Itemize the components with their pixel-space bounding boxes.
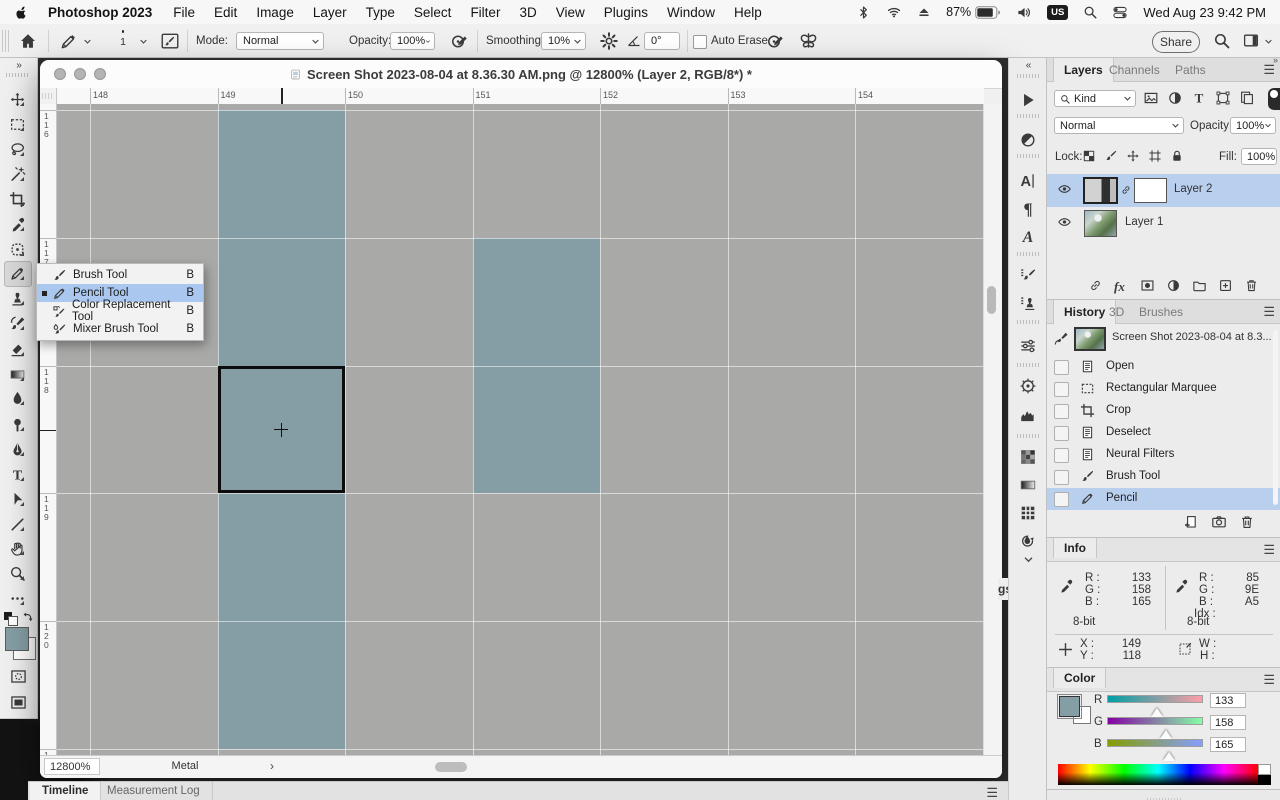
w-label: W : [1199,638,1216,650]
menu-help[interactable]: Help [734,5,762,20]
info-panel: Info ☰ R : G : B : 133 158 165 8-bit R :… [1047,538,1280,668]
shape-layers-filter-icon[interactable] [1215,90,1231,106]
actions-panel-icon[interactable] [1019,91,1037,109]
history-source-well[interactable] [1054,382,1069,397]
horizontal-scrollbar-thumb[interactable] [435,762,467,772]
tool-move[interactable] [5,88,31,112]
x-value: 149 [1111,638,1141,650]
b-slider-handle[interactable] [1163,746,1175,761]
ruler-label: 154 [858,90,873,100]
adjustment-layers-filter-icon[interactable] [1167,90,1183,106]
menu-bar-clock[interactable]: Wed Aug 23 9:42 PM [1143,5,1266,20]
history-source-well[interactable] [1054,492,1069,507]
menu-select[interactable]: Select [414,5,452,20]
glyphs-panel-icon[interactable]: A [1019,228,1037,246]
macos-menu-bar: Photoshop 2023 FileEditImageLayerTypeSel… [0,0,1280,24]
layer-visibility-eye-icon[interactable] [1056,215,1073,229]
character-panel-icon[interactable]: A [1019,172,1037,190]
ruler-label: 1 1 6 [44,112,49,139]
history-item-crop[interactable]: Crop [1047,400,1280,422]
pixel-grid-line [855,104,856,756]
tool-preset-chevron-icon[interactable] [83,37,92,46]
dock-grabber[interactable] [1017,252,1039,256]
pixel-grid-line [600,104,601,756]
tool-clone-stamp[interactable] [5,287,31,311]
flyout-item-color-replacement-tool[interactable]: Color Replacement ToolB [37,302,203,320]
quick-mask-icon[interactable] [9,668,28,685]
lock-position-icon[interactable] [1126,149,1140,163]
menu-window[interactable]: Window [667,5,715,20]
history-snapshot-row[interactable]: Screen Shot 2023-08-04 at 8.3... [1047,326,1280,354]
tool-object-selection[interactable] [5,163,31,187]
pixel-grid-line [473,104,474,756]
color-panel: Color ☰ R 133 G 158 B 165 [1047,668,1280,790]
g-slider-handle[interactable] [1160,724,1172,739]
new-group-icon[interactable] [1192,278,1207,293]
pixel-grid-line [57,749,984,750]
bit-depth: 8-bit [1073,616,1095,628]
smoothing-select[interactable]: 10% [541,32,586,50]
flyout-shortcut: B [186,305,194,317]
mode-label: Mode: [196,35,228,47]
tab-info[interactable]: Info [1053,538,1097,558]
history-item-rectangular-marquee[interactable]: Rectangular Marquee [1047,378,1280,400]
layers-panel: Layers Channels Paths ☰ » Kind T Normal … [1047,58,1280,300]
collapse-toolbar-icon[interactable]: » [0,60,37,71]
tools-panel: » T [0,58,38,719]
pixel-grid-line [57,493,984,494]
r-value: 133 [1127,572,1151,584]
home-icon[interactable] [19,32,37,50]
tab-channels[interactable]: Channels [1099,58,1170,82]
opacity-label: Opacity: [1190,120,1232,132]
brush-crosshair-cursor [281,423,283,437]
ruler-cursor-indicator [40,430,56,432]
eyedropper-icon[interactable] [1173,578,1189,594]
b-slider-label: B [1094,738,1102,750]
ruler-cursor-indicator [281,88,283,104]
app-menu-name[interactable]: Photoshop 2023 [48,5,152,20]
cursor-position-icon [1057,641,1074,658]
document-titlebar[interactable]: Screen Shot 2023-08-04 at 8.36.30 AM.png… [40,60,1002,89]
share-button[interactable]: Share [1152,31,1200,53]
svg-text:A: A [1022,229,1034,246]
tool-edit-toolbar[interactable] [5,587,31,611]
ruler-tick [473,88,474,104]
tool-line[interactable] [5,513,31,537]
tool-eyedropper[interactable] [5,213,31,237]
pixel-grid-line [90,104,91,756]
tab-timeline[interactable]: Timeline [30,782,101,800]
ruler-label: 149 [221,90,236,100]
type-icon: T [9,466,26,483]
y-label: Y : [1080,650,1094,662]
g-label: G : [1085,584,1100,596]
current-tool-icon[interactable] [59,32,78,51]
menu-3d[interactable]: 3D [519,5,536,20]
history-scrollbar[interactable] [1273,330,1278,505]
b-value: 165 [1127,596,1151,608]
adjustments-half-panel-icon[interactable] [1019,131,1037,149]
smoothing-gear-icon[interactable] [599,31,619,51]
input-source-badge[interactable]: US [1047,5,1068,20]
r-hex-value: 85 [1235,572,1259,584]
ruler-origin-corner[interactable] [40,88,57,105]
photoshop-app: { "menu_bar": { "app_name": "Photoshop 2… [0,0,1280,800]
auto-erase-label: Auto Erase [711,35,768,47]
selection-size-icon [1177,641,1193,657]
clone-source-panel-icon[interactable] [1019,294,1037,312]
tab-paths[interactable]: Paths [1165,58,1216,82]
svg-text:¶: ¶ [1023,200,1032,218]
menu-layer[interactable]: Layer [313,5,347,20]
line-icon [9,516,26,533]
history-item-label: Brush Tool [1106,470,1160,482]
new-snapshot-icon[interactable] [1211,514,1227,530]
paragraph-panel-icon[interactable]: ¶ [1019,200,1037,218]
r-label: R : [1085,572,1100,584]
tool-pencil[interactable] [4,261,32,287]
tool-gradient[interactable] [5,363,31,387]
foreground-color-swatch[interactable] [1059,696,1080,717]
dock-grabber[interactable] [1017,320,1039,324]
volume-icon[interactable] [1016,5,1032,20]
chevron-down-icon [1264,121,1272,130]
bluetooth-icon[interactable] [856,5,871,20]
mixer-brush-icon [52,322,67,337]
status-chevron-icon[interactable]: › [270,759,274,773]
default-colors-bg-icon [8,616,18,626]
dock-grabber[interactable] [1017,434,1039,438]
pixel-grid-line [345,104,346,756]
tool-crop[interactable] [5,188,31,212]
opacity-select[interactable]: 100% [390,32,435,50]
workspace-switcher-icon[interactable] [1242,32,1260,49]
close-window-button[interactable] [54,68,66,80]
tool-lasso[interactable] [5,138,31,162]
hand-icon [9,540,26,557]
ruler-tick [600,88,601,104]
layer-name[interactable]: Layer 2 [1174,183,1212,195]
brush-icon [1080,469,1095,484]
snapshot-name: Screen Shot 2023-08-04 at 8.3... [1112,331,1272,343]
layer-opacity-select[interactable]: 100% [1230,117,1276,134]
menu-image[interactable]: Image [256,5,294,20]
blur-icon [9,390,26,407]
crop-sm-icon [1080,403,1095,418]
vertical-ruler: 1 1 61 1 71 1 81 1 91 2 01 2 1 [40,104,57,756]
tool-eraser[interactable] [5,338,31,362]
type-layers-filter-icon[interactable]: T [1191,90,1207,106]
tool-type[interactable]: T [5,463,31,487]
apple-menu-icon[interactable] [14,4,29,21]
link-layers-icon[interactable] [1088,278,1103,293]
menu-plugins[interactable]: Plugins [604,5,648,20]
flyout-item-label: Mixer Brush Tool [73,323,158,335]
paint-symmetry-icon[interactable] [798,30,819,51]
adjustments-panel-icon[interactable] [1019,337,1037,355]
panel-dock: Layers Channels Paths ☰ » Kind T Normal … [1046,58,1280,800]
dock-grabber[interactable] [1017,114,1039,118]
history-source-well[interactable] [1054,426,1069,441]
menu-edit[interactable]: Edit [214,5,237,20]
tool-path-selection[interactable] [5,488,31,512]
g-hex-value: 9E [1235,584,1259,596]
tool-pen[interactable] [5,438,31,462]
r-value-field[interactable]: 133 [1210,693,1246,708]
opacity-pressure-icon[interactable] [450,31,470,51]
fill-label: Fill: [1219,151,1237,163]
tool-dodge[interactable] [5,413,31,437]
angle-input[interactable]: 0° [644,32,680,50]
history-brush-icon [9,315,26,332]
b-value-field[interactable]: 165 [1210,737,1246,752]
add-layer-mask-icon[interactable] [1140,278,1155,293]
b-slider-track[interactable] [1107,739,1203,747]
eyedropper-icon [9,216,26,233]
new-doc-from-state-icon[interactable] [1183,514,1199,530]
smoothing-label: Smoothing: [486,35,544,47]
spotlight-icon[interactable] [1083,5,1097,19]
tool-rectangular-marquee[interactable] [5,113,31,137]
layer-effects-icon[interactable]: fx [1114,279,1125,295]
dodge-icon [9,416,26,433]
pixel-layers-filter-icon[interactable] [1143,90,1159,106]
flyout-item-mixer-brush-tool[interactable]: Mixer Brush ToolB [37,320,203,338]
history-item-brush-tool[interactable]: Brush Tool [1047,466,1280,488]
history-item-label: Pencil [1106,492,1137,504]
collapse-dock-icon[interactable]: » [1273,55,1277,65]
brush-preview[interactable]: 1 [112,28,134,48]
minimize-window-button[interactable] [74,68,86,80]
ruler-label: 1 2 0 [44,623,49,650]
lasso-icon [9,141,26,158]
vertical-scrollbar[interactable] [983,104,1002,756]
tab-measurement-log[interactable]: Measurement Log [95,782,213,800]
mode-select[interactable]: Normal [236,32,324,50]
svg-text:T: T [1195,91,1204,106]
brush-icon [52,268,67,283]
zoom-icon [9,565,26,582]
history-source-well[interactable] [1054,448,1069,463]
layer-thumbnail[interactable] [1084,210,1117,237]
screen-mode-icon[interactable] [9,694,28,711]
dock-grabber[interactable] [1017,363,1039,367]
bit-depth: 8-bit [1187,616,1209,628]
object-selection-icon [9,166,26,183]
auto-erase-checkbox[interactable] [693,35,707,49]
scrollbar-thumb[interactable] [987,286,996,314]
horizontal-ruler: 148149150151152153154 [57,88,984,105]
brush-settings-toggle-icon[interactable] [160,31,180,51]
layer-filter-kind-select[interactable]: Kind [1054,90,1136,107]
layer-fill-select[interactable]: 100% [1241,148,1277,165]
layer-name[interactable]: Layer 1 [1125,216,1163,228]
layer-row-1[interactable]: Layer 1 [1047,207,1280,240]
history-source-well[interactable] [1054,404,1069,419]
size-pressure-icon[interactable] [766,31,786,51]
history-item-label: Neural Filters [1106,448,1174,460]
file-icon [290,68,301,81]
history-source-well[interactable] [1054,360,1069,375]
g-slider-label: G [1094,716,1103,728]
new-adjustment-layer-icon[interactable] [1166,278,1181,293]
zoom-level-field[interactable]: 12800% [44,758,100,775]
lock-pixels-icon[interactable] [1104,149,1118,163]
g-label: G : [1199,584,1214,596]
document-window: Screen Shot 2023-08-04 at 8.36.30 AM.png… [40,60,1002,778]
history-item-open[interactable]: Open [1047,356,1280,378]
zoom-window-button[interactable] [94,68,106,80]
tab-color[interactable]: Color [1053,668,1106,688]
tool-spot-healing-brush[interactable] [5,238,31,262]
chevron-down-icon [1123,94,1132,103]
brush-picker-chevron-icon[interactable] [139,37,148,46]
path-selection-icon [9,491,26,508]
eject-icon[interactable] [917,5,931,19]
pencil-icon [9,265,26,282]
dock-more-chevron-icon[interactable] [1023,554,1034,565]
wifi-icon[interactable] [886,5,902,19]
brush-tools-flyout-menu: Brush ToolBPencil ToolBColor Replacement… [36,263,204,341]
options-grabber[interactable] [2,30,11,52]
dock-grabber[interactable] [1017,74,1039,78]
swap-colors-icon[interactable] [20,610,34,624]
g-value-field[interactable]: 158 [1210,715,1246,730]
panel-menu-icon[interactable]: ☰ [1263,304,1275,320]
swatches-panel-icon[interactable] [1019,448,1037,466]
lock-all-icon[interactable] [1170,149,1184,163]
flyout-item-brush-tool[interactable]: Brush ToolB [37,266,203,284]
navigator-panel-icon[interactable] [1019,377,1037,395]
layer-mask-thumbnail[interactable] [1134,178,1167,203]
dock-grabber[interactable] [1017,154,1039,158]
r-slider-handle[interactable] [1151,702,1163,717]
foreground-color-swatch[interactable] [5,627,29,651]
chevron-down-icon [425,37,431,46]
b-label: B : [1085,596,1099,608]
layer-row-2[interactable]: Layer 2 [1047,174,1280,207]
panel-menu-icon[interactable]: ☰ [1263,542,1275,558]
mask-link-icon [1120,183,1132,197]
g-slider-track[interactable] [1107,717,1203,725]
toolbar-grabber[interactable] [6,73,30,77]
layer-thumbnail[interactable] [1083,177,1118,204]
patterns-panel-icon[interactable] [1019,504,1037,522]
history-item-pencil[interactable]: Pencil [1047,488,1280,510]
styles-panel-icon[interactable] [1019,532,1037,550]
b-label: B : [1199,596,1213,608]
tool-history-brush[interactable] [5,312,31,336]
panel-menu-icon[interactable]: ☰ [986,785,998,800]
layer-filter-switch[interactable] [1268,88,1280,110]
history-item-deselect[interactable]: Deselect [1047,422,1280,444]
current-tool-marker [42,291,47,296]
ruler-tick [90,88,91,104]
lock-transparency-icon[interactable] [1082,149,1096,163]
flyout-shortcut: B [186,323,194,335]
rectangular-marquee-icon [9,116,26,133]
document-canvas[interactable] [57,104,984,756]
pixel-cell [218,493,346,621]
b-hex-value: A5 [1235,596,1259,608]
opacity-label: Opacity: [349,35,391,47]
doc-icon [1080,425,1095,440]
menu-file[interactable]: File [173,5,195,20]
clone-stamp-icon [9,290,26,307]
spot-healing-brush-icon [9,241,26,258]
search-icon [1060,94,1070,104]
history-panel: History 3D Brushes ☰ Screen Shot 2023-08… [1047,300,1280,538]
ruler-label: 150 [348,90,363,100]
brush-tip-dot [122,30,125,33]
new-layer-icon[interactable] [1218,278,1233,293]
tab-brushes[interactable]: Brushes [1129,300,1193,324]
gradients-panel-icon[interactable] [1019,476,1037,494]
history-source-well[interactable] [1054,470,1069,485]
panel-menu-icon[interactable]: ☰ [1263,672,1275,688]
workspace-chevron-icon[interactable] [1264,37,1273,46]
battery-status[interactable]: 87% [946,5,1001,19]
tool-blur[interactable] [5,387,31,411]
lock-artboard-icon[interactable] [1148,149,1162,163]
menu-filter[interactable]: Filter [470,5,500,20]
marquee-sm-icon [1080,381,1095,396]
control-center-icon[interactable] [1112,5,1128,20]
brush-angle-icon [626,33,642,49]
black-swatch[interactable] [1258,775,1271,785]
delete-state-icon[interactable] [1239,514,1255,530]
y-value: 118 [1111,650,1141,662]
pixel-cell [218,621,346,749]
r-slider-label: R [1094,694,1102,706]
gradient-icon [9,366,26,383]
color-spectrum-ramp[interactable] [1058,764,1258,785]
bottom-panel-bar: Timeline Measurement Log ☰ [28,781,1008,800]
doc-icon [1080,447,1095,462]
menu-type[interactable]: Type [366,5,395,20]
expand-dock-icon[interactable]: « [1009,60,1047,71]
pixel-grid-line [57,110,984,111]
search-icon[interactable] [1213,32,1230,49]
collapsed-panel-dock: « A¶A [1008,58,1047,800]
history-brush-source-icon[interactable] [1053,331,1069,347]
tool-hand[interactable] [5,537,31,561]
layer-visibility-eye-icon[interactable] [1056,182,1073,196]
snapshot-thumbnail[interactable] [1074,327,1106,351]
pixel-grid-line [57,238,984,239]
gpu-mode-status[interactable]: Metal [150,760,220,772]
eyedropper-icon[interactable] [1058,578,1074,594]
smart-objects-filter-icon[interactable] [1239,90,1255,106]
doc-icon [1080,359,1095,374]
blend-mode-select[interactable]: Normal [1054,117,1184,134]
ruler-label: 153 [731,90,746,100]
brush-settings-panel-icon[interactable] [1019,266,1037,284]
history-item-label: Open [1106,360,1134,372]
pen-icon [9,441,26,458]
pixel-cell [218,110,346,238]
white-swatch[interactable] [1258,764,1271,775]
menu-view[interactable]: View [556,5,585,20]
history-item-neural-filters[interactable]: Neural Filters [1047,444,1280,466]
ruler-label: 152 [603,90,618,100]
x-label: X : [1080,638,1094,650]
histogram-panel-icon[interactable] [1019,406,1037,424]
pixel-grid-line [728,104,729,756]
tool-zoom[interactable] [5,562,31,586]
delete-layer-icon[interactable] [1244,278,1259,293]
